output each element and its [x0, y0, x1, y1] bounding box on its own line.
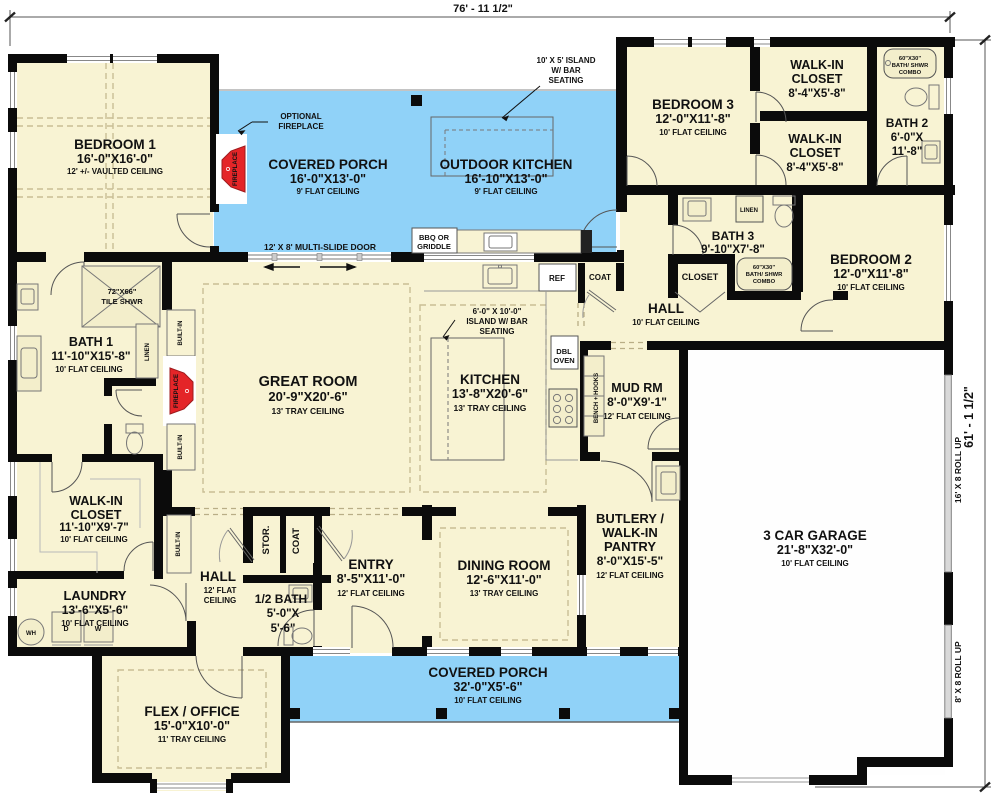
svg-text:COAT: COAT: [589, 273, 611, 282]
svg-text:16'-0"X13'-0": 16'-0"X13'-0": [290, 172, 366, 186]
svg-text:60"X30": 60"X30": [899, 56, 922, 62]
svg-text:COVERED PORCH: COVERED PORCH: [268, 157, 387, 172]
svg-text:BEDROOM 3: BEDROOM 3: [652, 97, 734, 112]
svg-text:OPTIONAL: OPTIONAL: [280, 112, 321, 121]
svg-text:12'-0"X11'-8": 12'-0"X11'-8": [833, 267, 909, 281]
svg-text:WALK-IN: WALK-IN: [69, 494, 122, 508]
svg-text:HALL: HALL: [648, 301, 684, 316]
svg-text:5'-6": 5'-6": [271, 623, 296, 635]
svg-text:HALL: HALL: [200, 569, 236, 584]
svg-text:1/2 BATH: 1/2 BATH: [255, 592, 307, 606]
svg-text:BEDROOM 1: BEDROOM 1: [74, 137, 156, 152]
svg-text:BATH/ SHWR: BATH/ SHWR: [746, 272, 783, 278]
svg-text:WALK-IN: WALK-IN: [788, 132, 841, 146]
svg-text:OUTDOOR KITCHEN: OUTDOOR KITCHEN: [440, 157, 573, 172]
svg-text:PANTRY: PANTRY: [604, 539, 656, 554]
svg-text:BATH/ SHWR: BATH/ SHWR: [892, 63, 929, 69]
svg-text:12'-0"X11'-8": 12'-0"X11'-8": [655, 112, 731, 126]
svg-text:BBQ OR: BBQ OR: [419, 233, 450, 242]
svg-text:12' X 8' MULTI-SLIDE DOOR: 12' X 8' MULTI-SLIDE DOOR: [264, 242, 376, 252]
svg-text:CLOSET: CLOSET: [71, 508, 122, 522]
svg-text:BATH 2: BATH 2: [886, 116, 929, 130]
svg-text:DBL: DBL: [556, 347, 572, 356]
svg-text:9' FLAT CEILING: 9' FLAT CEILING: [474, 187, 537, 196]
svg-text:12' FLAT CEILING: 12' FLAT CEILING: [596, 571, 664, 580]
svg-text:W: W: [95, 626, 102, 633]
svg-text:15'-0"X10'-0": 15'-0"X10'-0": [154, 719, 230, 733]
svg-text:60"X30": 60"X30": [753, 265, 776, 271]
svg-text:GREAT ROOM: GREAT ROOM: [259, 374, 358, 390]
svg-text:10' FLAT CEILING: 10' FLAT CEILING: [837, 283, 905, 292]
svg-text:13'-6"X5'-6": 13'-6"X5'-6": [62, 603, 128, 617]
svg-text:11' TRAY CEILING: 11' TRAY CEILING: [158, 735, 226, 744]
svg-text:FLEX / OFFICE: FLEX / OFFICE: [144, 704, 239, 719]
svg-text:76' - 11 1/2": 76' - 11 1/2": [453, 3, 513, 15]
svg-text:COMBO: COMBO: [753, 279, 776, 285]
svg-text:10' FLAT CEILING: 10' FLAT CEILING: [55, 365, 123, 374]
svg-text:W/ BAR: W/ BAR: [551, 66, 581, 75]
svg-text:COMBO: COMBO: [899, 70, 922, 76]
svg-text:ISLAND W/ BAR: ISLAND W/ BAR: [466, 317, 528, 326]
svg-text:16'-0"X16'-0": 16'-0"X16'-0": [77, 152, 153, 166]
svg-text:COAT: COAT: [291, 528, 302, 554]
svg-text:BATH 1: BATH 1: [69, 335, 113, 349]
svg-text:6'-0" X 10'-0": 6'-0" X 10'-0": [473, 307, 522, 316]
svg-text:FIREPLACE: FIREPLACE: [233, 152, 239, 186]
svg-text:BUILT-IN: BUILT-IN: [176, 532, 182, 557]
svg-text:9'-10"X7'-8": 9'-10"X7'-8": [701, 244, 765, 256]
svg-text:13'-8"X20'-6": 13'-8"X20'-6": [452, 387, 528, 401]
svg-text:12'-6"X11'-0": 12'-6"X11'-0": [466, 573, 542, 587]
svg-text:BEDROOM 2: BEDROOM 2: [830, 252, 912, 267]
svg-text:FIREPLACE: FIREPLACE: [174, 374, 180, 408]
svg-text:CEILING: CEILING: [204, 596, 236, 605]
svg-text:CLOSET: CLOSET: [792, 72, 843, 86]
svg-text:FIREPLACE: FIREPLACE: [278, 122, 324, 131]
svg-text:COVERED PORCH: COVERED PORCH: [428, 665, 547, 680]
svg-text:72"X66": 72"X66": [108, 287, 137, 296]
svg-text:11'-8": 11'-8": [892, 146, 923, 158]
svg-text:CLOSET: CLOSET: [790, 146, 841, 160]
svg-text:9' FLAT CEILING: 9' FLAT CEILING: [296, 187, 359, 196]
svg-text:BUILT-IN: BUILT-IN: [178, 435, 184, 460]
svg-text:WH: WH: [26, 631, 36, 637]
svg-text:8'-5"X11'-0": 8'-5"X11'-0": [337, 572, 406, 586]
svg-text:MUD RM: MUD RM: [611, 381, 662, 395]
svg-text:LINEN: LINEN: [740, 208, 758, 214]
svg-text:KITCHEN: KITCHEN: [460, 372, 520, 387]
svg-text:11'-10"X15'-8": 11'-10"X15'-8": [51, 349, 130, 363]
svg-text:WALK-IN: WALK-IN: [602, 525, 658, 540]
svg-text:11'-10"X9'-7": 11'-10"X9'-7": [59, 522, 128, 534]
svg-text:BENCH + HOOKS: BENCH + HOOKS: [594, 373, 600, 423]
svg-text:LINEN: LINEN: [145, 343, 151, 361]
svg-text:12' FLAT CEILING: 12' FLAT CEILING: [337, 589, 405, 598]
svg-text:12' +/- VAULTED CEILING: 12' +/- VAULTED CEILING: [67, 167, 163, 176]
svg-text:8' X 8 ROLL UP: 8' X 8 ROLL UP: [953, 641, 963, 703]
svg-text:SEATING: SEATING: [480, 327, 515, 336]
svg-text:5'-0"X: 5'-0"X: [267, 608, 300, 620]
svg-text:WALK-IN: WALK-IN: [790, 58, 843, 72]
svg-text:REF: REF: [549, 274, 565, 283]
svg-text:12' FLAT: 12' FLAT: [204, 586, 237, 595]
svg-text:8'-4"X5'-8": 8'-4"X5'-8": [788, 88, 845, 100]
svg-text:10' FLAT CEILING: 10' FLAT CEILING: [454, 696, 522, 705]
svg-text:16'-10"X13'-0": 16'-10"X13'-0": [464, 172, 547, 186]
svg-text:3 CAR GARAGE: 3 CAR GARAGE: [763, 528, 867, 543]
svg-text:BATH 3: BATH 3: [712, 229, 755, 243]
svg-text:OVEN: OVEN: [553, 356, 574, 365]
svg-text:STOR.: STOR.: [261, 526, 272, 555]
svg-text:12' FLAT CEILING: 12' FLAT CEILING: [603, 412, 671, 421]
svg-text:13' TRAY CEILING: 13' TRAY CEILING: [272, 406, 345, 416]
svg-text:BUILT-IN: BUILT-IN: [178, 321, 184, 346]
svg-text:8'-4"X5'-8": 8'-4"X5'-8": [786, 162, 843, 174]
svg-text:TILE SHWR: TILE SHWR: [101, 297, 143, 306]
svg-text:DINING ROOM: DINING ROOM: [458, 558, 551, 573]
svg-text:GRIDDLE: GRIDDLE: [417, 242, 451, 251]
svg-text:13' TRAY CEILING: 13' TRAY CEILING: [470, 589, 539, 598]
svg-text:BUTLERY /: BUTLERY /: [596, 511, 664, 526]
svg-text:LAUNDRY: LAUNDRY: [63, 588, 126, 603]
svg-text:10' X 5' ISLAND: 10' X 5' ISLAND: [537, 56, 596, 65]
svg-text:CLOSET: CLOSET: [682, 272, 719, 282]
svg-text:10' FLAT CEILING: 10' FLAT CEILING: [659, 128, 727, 137]
svg-text:ENTRY: ENTRY: [348, 557, 393, 572]
svg-text:8'-0"X15'-5": 8'-0"X15'-5": [597, 554, 663, 568]
svg-text:20'-9"X20'-6": 20'-9"X20'-6": [268, 389, 347, 404]
svg-text:32'-0"X5'-6": 32'-0"X5'-6": [453, 680, 522, 694]
svg-text:SEATING: SEATING: [549, 76, 584, 85]
svg-text:10' FLAT CEILING: 10' FLAT CEILING: [781, 559, 849, 568]
svg-text:8'-0"X9'-1": 8'-0"X9'-1": [607, 395, 667, 409]
svg-text:6'-0"X: 6'-0"X: [891, 132, 924, 144]
svg-text:13' TRAY CEILING: 13' TRAY CEILING: [454, 403, 527, 413]
svg-text:61' - 1 1/2": 61' - 1 1/2": [962, 386, 976, 448]
svg-text:21'-8"X32'-0": 21'-8"X32'-0": [777, 543, 853, 557]
svg-text:10' FLAT CEILING: 10' FLAT CEILING: [632, 318, 700, 327]
svg-text:10' FLAT CEILING: 10' FLAT CEILING: [60, 535, 128, 544]
svg-text:D: D: [63, 626, 68, 633]
